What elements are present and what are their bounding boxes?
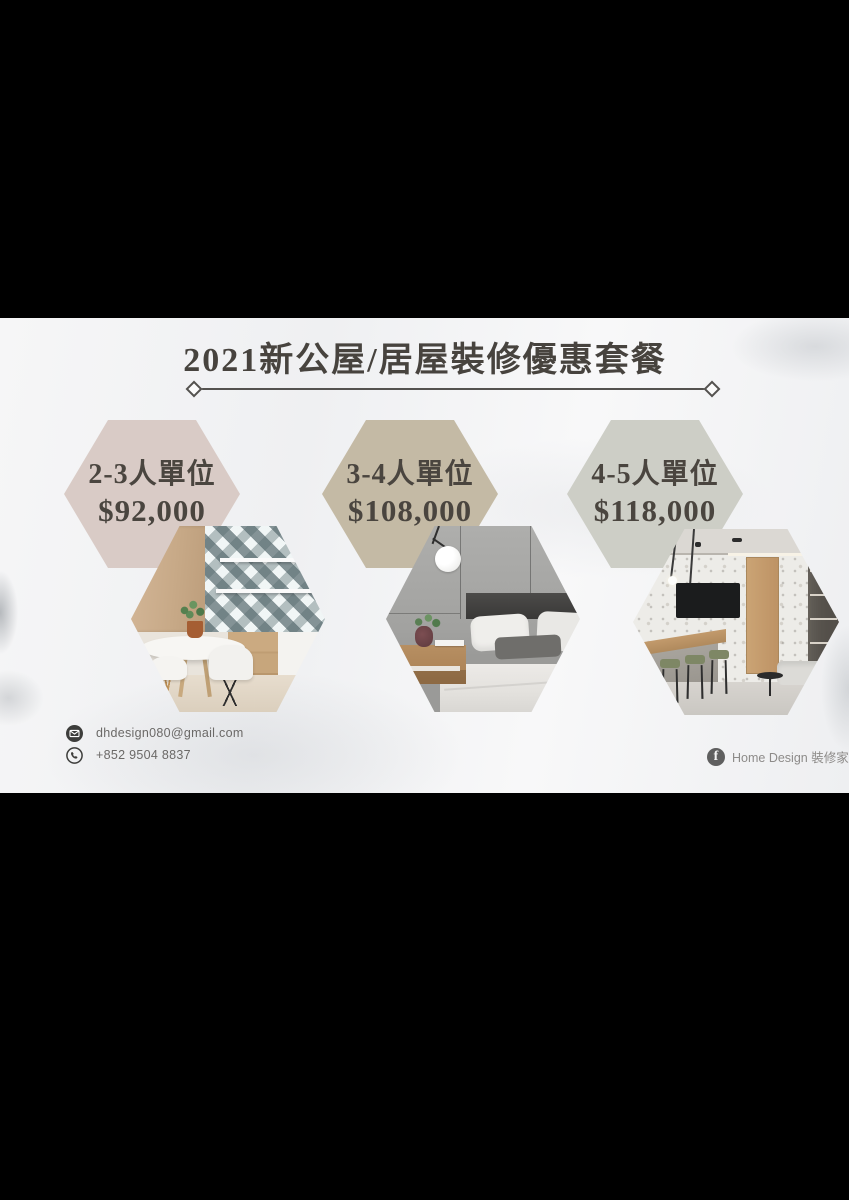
vase [415,626,432,646]
divider-line [200,388,706,390]
email-icon [66,725,83,742]
white-chair [150,656,187,680]
sofa [777,661,826,685]
gray-pillow [494,634,561,660]
wall-seam [460,526,461,619]
chair-legs [216,679,245,707]
diamond-ornament-left [186,381,203,398]
shelf-lines [810,570,837,572]
letterboxed-promo-image: 2021新公屋/居屋裝修優惠套餐 2-3人單位 $92,000 3-4人單位 $… [0,0,849,1200]
contact-block: dhdesign080@gmail.com +852 9504 8837 [66,722,244,766]
package-unit-label: 3-4人單位 [346,459,473,491]
wall-shelf [216,589,317,593]
potted-plant-leaves [174,595,209,623]
letterbox-bottom [0,793,849,1200]
whatsapp-icon [66,747,83,764]
promo-poster: 2021新公屋/居屋裝修優惠套餐 2-3人單位 $92,000 3-4人單位 $… [0,318,849,793]
ceiling-spotlight [695,542,701,547]
floor [633,682,839,715]
facebook-page-name: Home Design 裝修家 [732,747,849,766]
package-price: $118,000 [594,492,717,529]
package-price: $108,000 [348,492,472,529]
chair-legs [156,679,181,705]
package-unit-label: 4-5人單位 [591,459,718,491]
contact-phone: +852 9504 8837 [96,748,191,762]
contact-email: dhdesign080@gmail.com [96,726,244,740]
book [435,640,464,646]
cove-light [728,553,839,556]
wall-seam [530,526,531,600]
facebook-icon: f [707,748,725,766]
title-divider [188,380,718,398]
package-price: $92,000 [98,492,206,529]
geometric-wallpaper [205,526,325,632]
nightstand-shelf [402,666,460,672]
ceiling-spotlight [732,538,742,542]
white-chair [209,645,254,680]
contact-email-row: dhdesign080@gmail.com [66,722,244,744]
bar-stool [685,655,705,664]
plant-pot [187,621,203,638]
package-unit-label: 2-3人單位 [88,459,215,491]
wood-door [746,557,779,674]
poster-title: 2021新公屋/居屋裝修優惠套餐 [120,332,730,381]
bar-stool [660,659,680,668]
bar-stool [709,650,729,659]
wall-tv [676,583,740,618]
letterbox-top [0,0,849,318]
contact-phone-row: +852 9504 8837 [66,744,244,766]
wall-shelf [220,558,317,562]
pendant-lamp-globe [435,546,461,572]
diamond-ornament-right [704,381,721,398]
facebook-block: f Home Design 裝修家 [707,747,849,766]
